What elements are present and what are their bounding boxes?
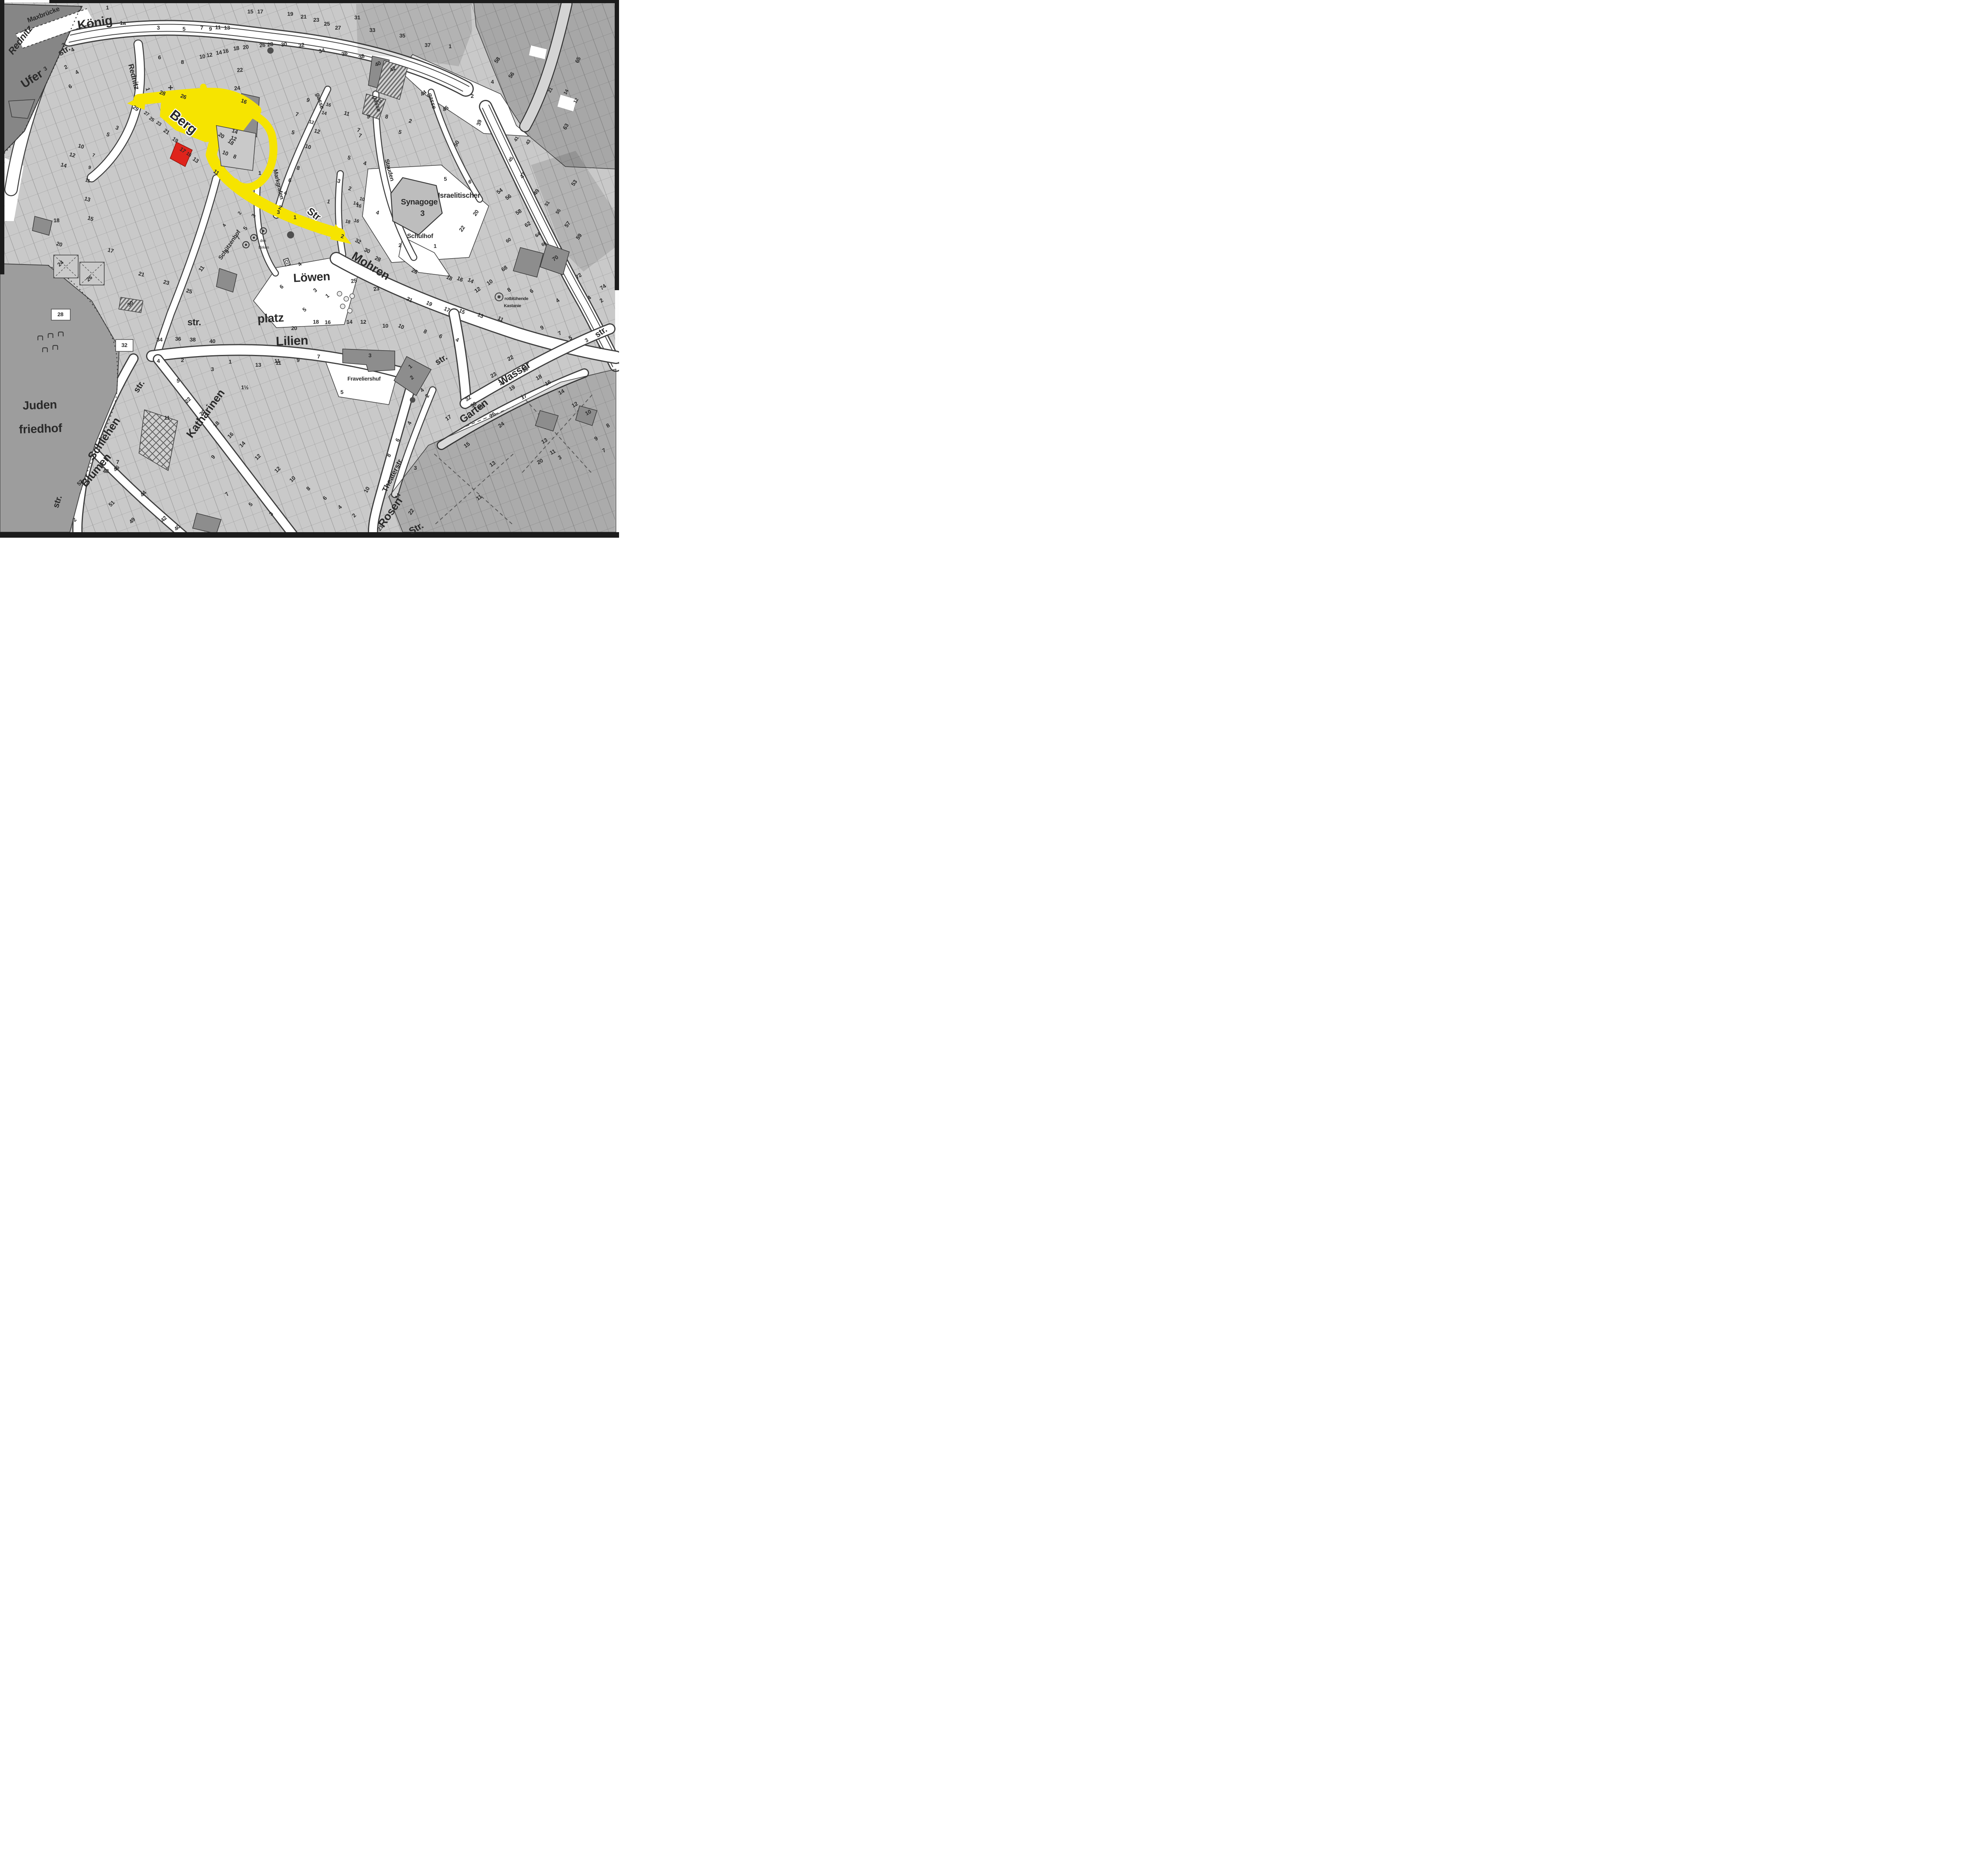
map-label: Schulhof xyxy=(407,233,433,240)
map-label: 3 xyxy=(211,366,214,372)
map-label: 16 xyxy=(222,47,229,54)
map-label: Synagoge xyxy=(401,198,437,206)
map-label: 2 xyxy=(181,357,184,363)
map-label: 15 xyxy=(248,8,253,15)
map-label: 3 xyxy=(277,209,280,215)
map-label: 2 xyxy=(398,242,402,248)
map-label: 31 xyxy=(355,14,360,21)
map-label: 1 xyxy=(106,4,109,11)
map-label: 11 xyxy=(215,24,221,30)
map-label: Birken xyxy=(259,246,269,250)
tree-icon xyxy=(267,47,274,54)
map-label: 1 xyxy=(293,214,296,220)
map-label: 20 xyxy=(242,43,250,51)
map-label: 40 xyxy=(210,338,216,344)
map-label: Fraveliershuf xyxy=(347,375,381,382)
map-label: 11 xyxy=(274,358,280,364)
map-label: Lilien xyxy=(276,333,308,349)
map-label: 24 xyxy=(234,84,240,91)
map-label: 12 xyxy=(360,319,366,325)
map-label: 7 xyxy=(116,459,119,465)
map-label: 23 xyxy=(313,17,319,23)
map-label: 48 xyxy=(103,468,109,474)
map-label: 1a xyxy=(120,20,126,26)
map-label: 30 xyxy=(281,41,288,48)
map-label: 36 xyxy=(175,336,181,342)
map-label: 37 xyxy=(425,42,431,48)
map-label: 5 xyxy=(182,26,186,32)
map-label: 9 xyxy=(209,26,212,32)
tree-icon xyxy=(287,231,294,238)
map-label: 9 xyxy=(296,357,300,363)
map-label: 3 xyxy=(420,209,425,218)
map-label: 5 xyxy=(340,389,343,395)
map-label: 8 xyxy=(181,59,184,65)
map-label: 6 xyxy=(468,178,471,185)
map-label: 1 xyxy=(229,358,232,365)
city-map-page: MaxbrückeRednitzKönigstr.UferRednitzBerg… xyxy=(0,0,619,538)
city-map: MaxbrückeRednitzKönigstr.UferRednitzBerg… xyxy=(0,0,619,538)
map-label: 34 xyxy=(157,336,163,343)
map-label: 13 xyxy=(224,24,230,31)
map-label: 7 xyxy=(200,24,203,31)
map-label: friedhof xyxy=(19,422,63,436)
map-label: 16 xyxy=(325,319,331,325)
map-label: 3 xyxy=(414,465,417,471)
map-label: str. xyxy=(188,317,201,328)
map-label: 32 xyxy=(298,41,305,49)
map-label: 1½ xyxy=(241,384,249,390)
map-label: 28 xyxy=(267,41,274,48)
map-label: platz xyxy=(257,311,284,325)
map-label: 13 xyxy=(255,362,261,368)
map-label: drei xyxy=(260,239,266,243)
map-label: 26 xyxy=(259,41,266,49)
map-label: 38 xyxy=(190,336,196,343)
map-label: 14 xyxy=(216,49,223,56)
border-bottom xyxy=(0,532,619,538)
map-label: 33 xyxy=(370,27,375,33)
map-label: 18 xyxy=(233,45,240,52)
map-label: 4 xyxy=(491,79,494,85)
map-label: 35 xyxy=(400,32,405,39)
map-label: 18 xyxy=(313,319,319,325)
map-label: Israelitischer xyxy=(438,191,480,199)
border-top xyxy=(49,0,619,3)
map-label: 14 xyxy=(347,319,353,325)
map-label: 1 xyxy=(433,243,437,249)
map-label: 10 xyxy=(199,53,206,60)
map-label: 22 xyxy=(236,66,243,73)
map-label: 12 xyxy=(206,51,213,58)
map-label: Juden xyxy=(23,398,57,413)
map-label: 4 xyxy=(157,358,160,364)
map-label: 11 xyxy=(164,415,170,421)
map-label: 5 xyxy=(176,377,180,384)
map-label: 3 xyxy=(368,352,372,358)
map-label: 28 xyxy=(58,311,64,317)
map-label: 6 xyxy=(158,54,161,60)
map-label: 19 xyxy=(287,11,293,17)
map-label: 17 xyxy=(257,8,263,15)
map-label: Löwen xyxy=(293,270,330,285)
map-label: 10 xyxy=(383,323,388,329)
map-label: 1 xyxy=(258,170,261,176)
map-label: 18 xyxy=(54,217,60,223)
map-label: 2 xyxy=(471,93,474,99)
street-geleitsgasse xyxy=(338,174,343,255)
map-label: 27 xyxy=(335,24,341,31)
map-label: rotblühende xyxy=(505,296,528,301)
map-label: 25 xyxy=(324,21,330,27)
map-label: 1 xyxy=(448,43,452,49)
map-label: 32 xyxy=(122,342,128,348)
map-label: 7 xyxy=(317,353,320,360)
border-left xyxy=(0,0,4,274)
border-right xyxy=(615,0,619,290)
map-label: Kastanie xyxy=(504,304,521,308)
map-label: 20 xyxy=(291,325,297,331)
tree-icon xyxy=(410,397,415,403)
map-label: 21 xyxy=(301,13,307,20)
map-label: 3 xyxy=(157,24,160,31)
map-label: 5 xyxy=(444,176,447,182)
